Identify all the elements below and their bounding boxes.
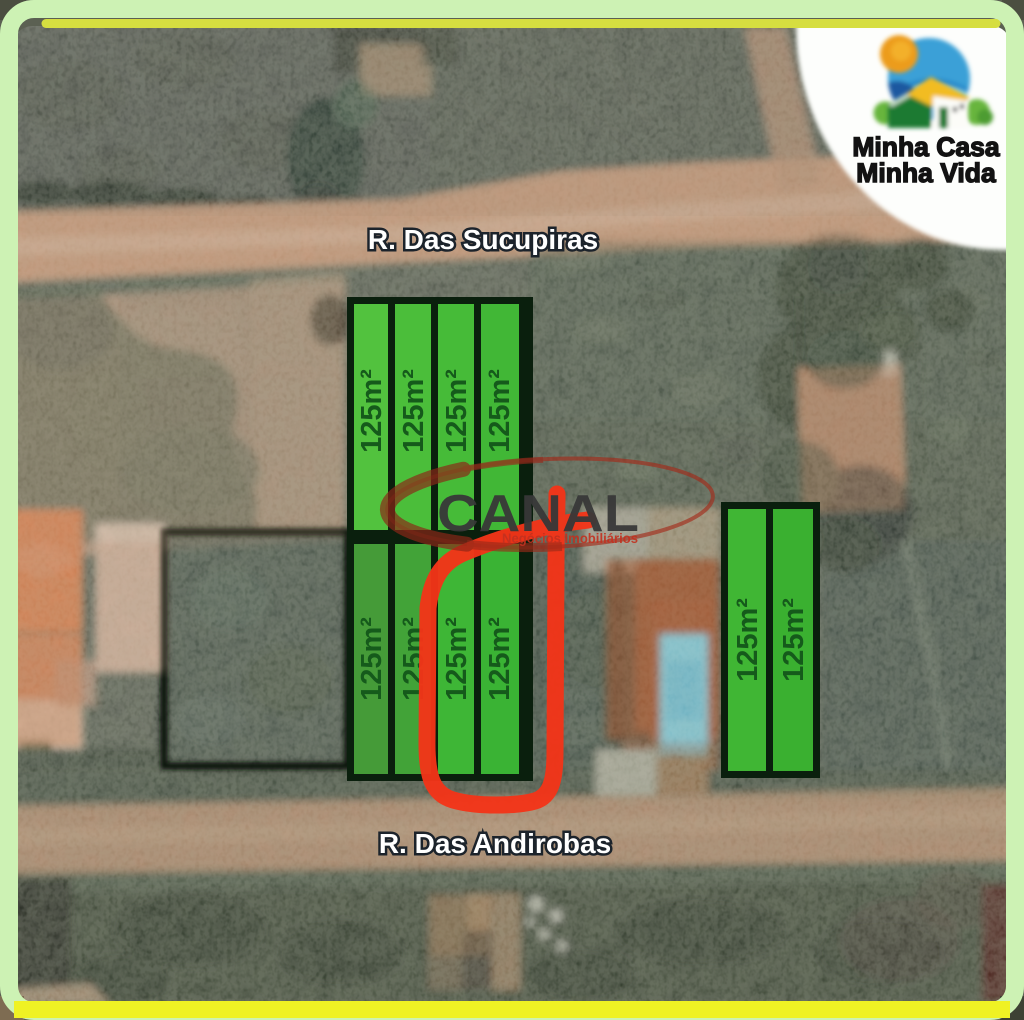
svg-text:125m²: 125m² — [356, 617, 388, 701]
svg-text:R. Das Andirobas: R. Das Andirobas — [379, 828, 611, 859]
svg-text:R. Das Sucupiras: R. Das Sucupiras — [368, 224, 598, 255]
svg-text:Negócios Imobiliários: Negócios Imobiliários — [502, 530, 638, 546]
svg-text:125m²: 125m² — [732, 598, 764, 682]
svg-text:125m²: 125m² — [484, 617, 516, 701]
svg-text:125m²: 125m² — [398, 369, 430, 453]
svg-text:Minha Vida: Minha Vida — [856, 158, 996, 188]
svg-text:125m²: 125m² — [778, 598, 810, 682]
svg-text:125m²: 125m² — [484, 369, 516, 453]
svg-text:125m²: 125m² — [356, 369, 388, 453]
svg-text:125m²: 125m² — [441, 369, 473, 453]
svg-text:125m²: 125m² — [441, 617, 473, 701]
